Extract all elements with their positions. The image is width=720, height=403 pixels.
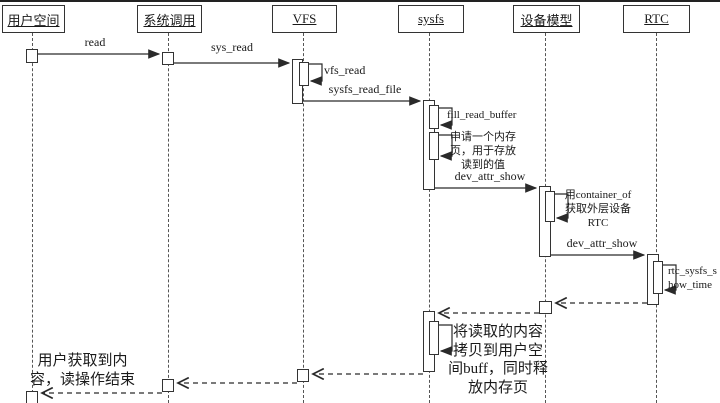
note-alloc-page-line: 页，用于存放 (450, 144, 516, 158)
label-sys-read: sys_read (198, 40, 266, 55)
note-container-of: 用container_of 获取外层设备 RTC (562, 188, 634, 230)
note-alloc-page-line: 申请一个内存 (450, 130, 516, 144)
note-copy-to-user-line: 放内存页 (447, 379, 549, 398)
note-container-of-line: 用container_of (562, 188, 634, 202)
note-copy-to-user-line: 拷贝到用户空 (447, 342, 549, 361)
note-copy-to-user-line: 将读取的内容 (447, 323, 549, 342)
sequence-diagram: 用户空间 系统调用 VFS sysfs 设备模型 RTC (0, 0, 720, 403)
note-read-finished-line: 用户获取到内 (10, 352, 155, 371)
label-dev-attr-show-2: dev_attr_show (556, 236, 648, 251)
note-alloc-page: 申请一个内存 页，用于存放 读到的值 (450, 130, 516, 172)
note-rtc-show-time: rtc_sysfs_s how_time (668, 264, 720, 292)
label-vfs-read: vfs_read (324, 63, 365, 78)
label-fill-read-buffer: fill_read_buffer (447, 109, 516, 121)
loop-vfs-read (309, 64, 322, 81)
note-rtc-show-time-line: rtc_sysfs_s (668, 264, 720, 278)
label-read: read (73, 35, 117, 50)
label-sysfs-read-file: sysfs_read_file (318, 82, 412, 97)
note-read-finished: 用户获取到内 容，读操作结束 (10, 352, 155, 389)
note-rtc-show-time-line: how_time (668, 278, 720, 292)
note-container-of-line: RTC (562, 216, 634, 230)
note-copy-to-user: 将读取的内容 拷贝到用户空 间buff，同时释 放内存页 (447, 323, 549, 397)
note-copy-to-user-line: 间buff，同时释 (447, 360, 549, 379)
note-container-of-line: 获取外层设备 (562, 202, 634, 216)
note-read-finished-line: 容，读操作结束 (10, 371, 155, 390)
note-alloc-page-line: 读到的值 (450, 158, 516, 172)
